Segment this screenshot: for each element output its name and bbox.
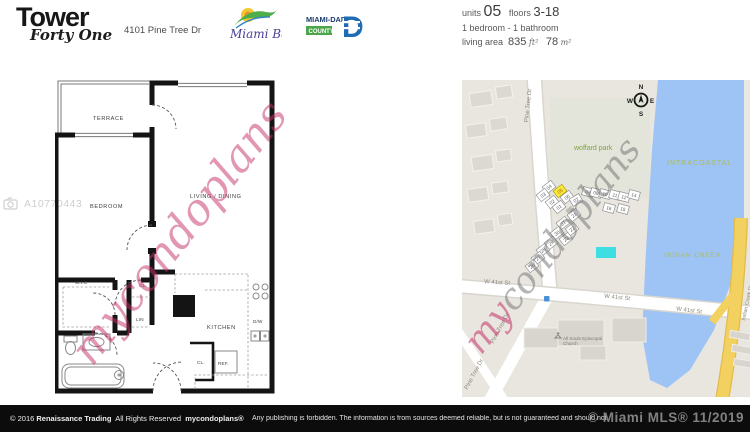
unit-info: units 05 floors 3-18 1 bedroom - 1 bathr… <box>462 3 692 48</box>
transit-icon <box>544 296 550 302</box>
map-unit-16: 16 <box>603 203 616 214</box>
bed-bath-line: 1 bedroom - 1 bathroom <box>462 23 692 33</box>
svg-text:E: E <box>650 98 655 105</box>
svg-text:Miami Beach: Miami Beach <box>229 27 282 41</box>
neighborhood-buildings <box>465 85 513 234</box>
tower-logo-subtitle: Forty One <box>30 26 112 44</box>
floors-range: 3-18 <box>533 4 559 19</box>
kitchen-label: KITCHEN <box>207 325 236 331</box>
svg-text:S: S <box>639 111 644 118</box>
bedroom-label: BEDROOM <box>90 204 123 210</box>
refrigerator-label: REF. <box>218 361 229 366</box>
footer-copyright: © 2016 Renaissance Trading All Rights Re… <box>10 414 244 423</box>
living-label: LIVING / DINING <box>190 194 242 200</box>
dishwasher-label: D/W <box>253 319 263 324</box>
svg-text:N: N <box>639 84 644 91</box>
unit-number: 05 <box>484 3 502 20</box>
living-area-line: living area 835 ft² 78 m² <box>462 36 692 49</box>
church-buildings <box>524 318 646 360</box>
unit-floors-line: units 05 floors 3-18 <box>462 3 692 21</box>
mls-watermark: © Miami MLS® 11/2019 <box>588 410 744 425</box>
camera-icon <box>3 197 20 211</box>
svg-text:COUNTY: COUNTY <box>309 29 334 35</box>
wic-label: W.I.C <box>75 280 88 285</box>
miami-beach-logo: Miami Beach <box>226 4 282 50</box>
building-address: 4101 Pine Tree Dr <box>124 25 201 36</box>
linen-label: LIN <box>136 317 144 322</box>
miami-dade-logo: MIAMI-DADE COUNTY D <box>306 9 364 45</box>
map-unit-15: 15 <box>617 204 630 215</box>
closet2-label: CL. <box>197 360 205 365</box>
floor-plan: TERRACE BEDROOM LIVING / DINING W.I.C CL… <box>55 75 275 400</box>
terrace-label: TERRACE <box>93 116 124 122</box>
pool <box>596 247 616 258</box>
closet1-label: CL. <box>139 283 147 288</box>
svg-text:W: W <box>627 98 634 105</box>
footer-bar: © 2016 Renaissance Trading All Rights Re… <box>0 405 750 432</box>
site-map: 0405030206010708091011121416152131223023… <box>462 80 750 397</box>
